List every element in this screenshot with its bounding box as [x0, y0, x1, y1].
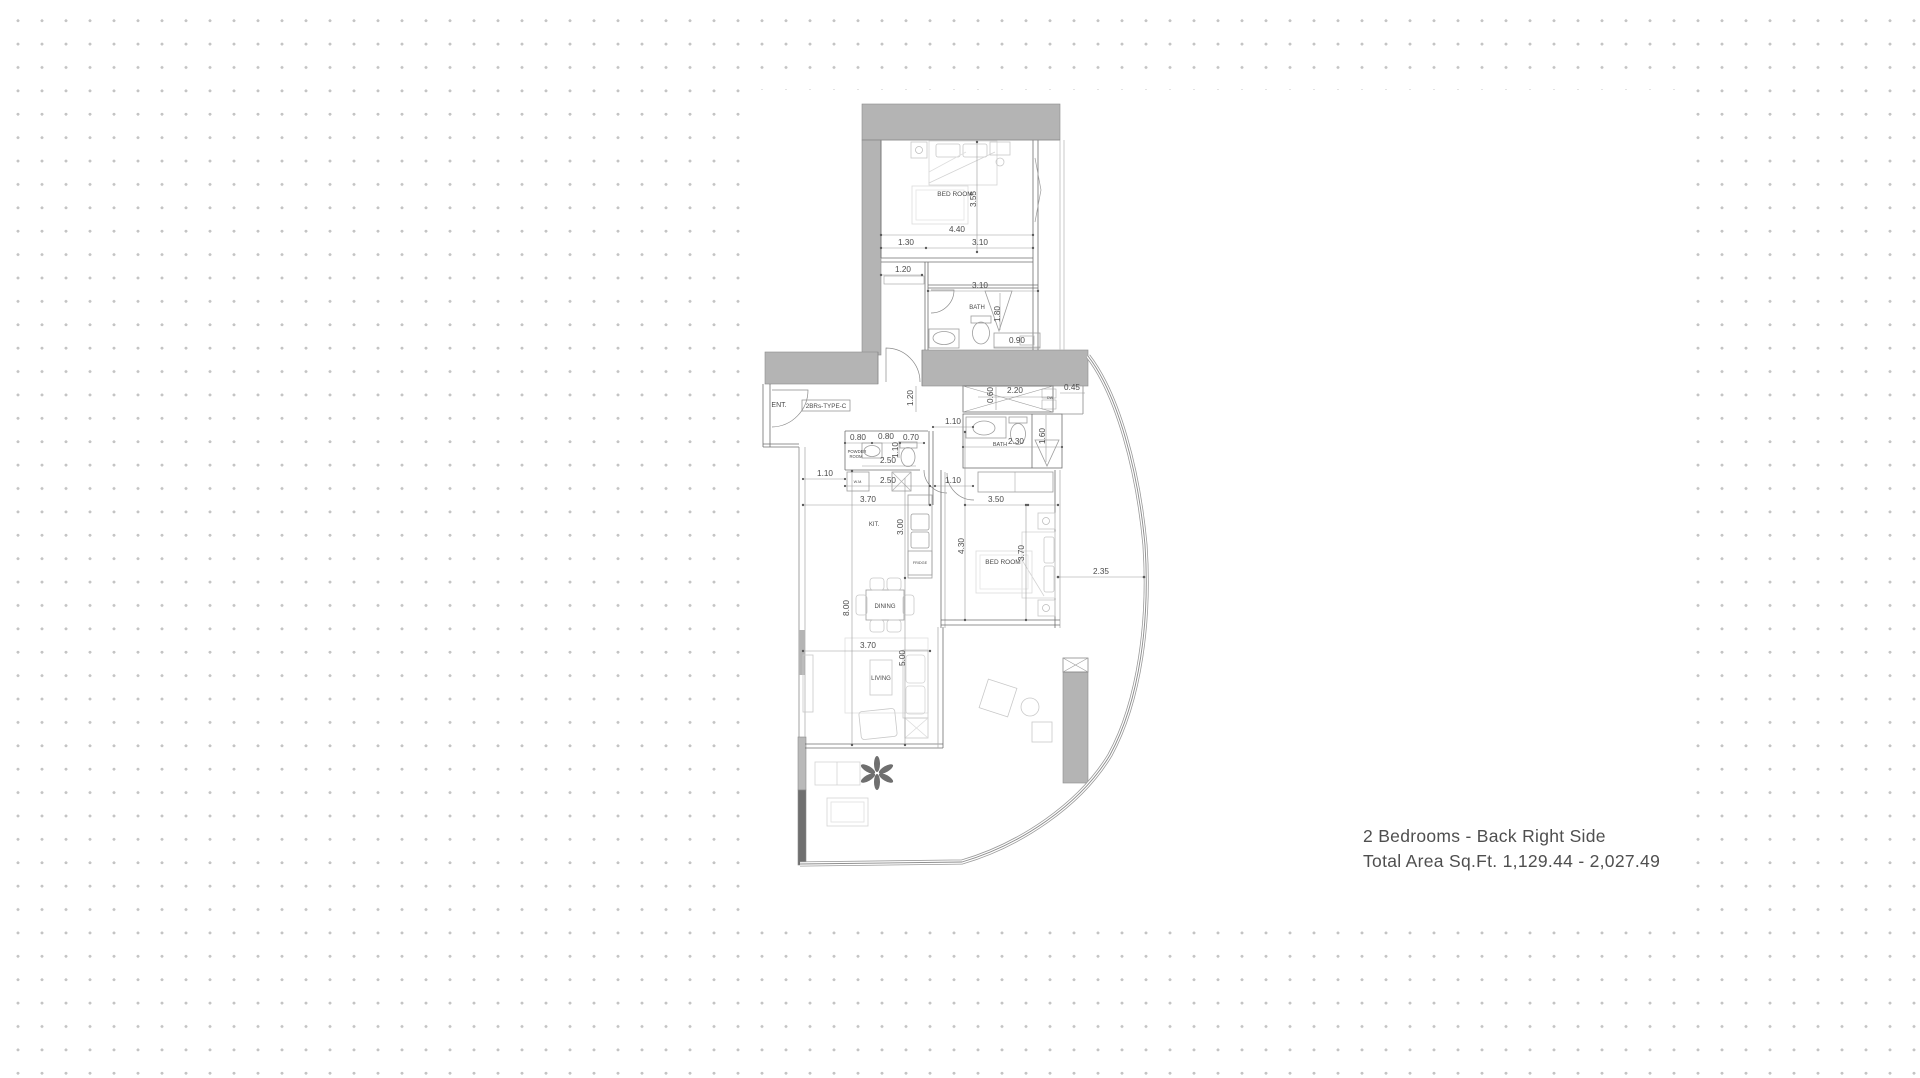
dim-label: 3.55	[969, 191, 978, 207]
dim-label: 1.80	[993, 306, 1002, 322]
caption-title: 2 Bedrooms - Back Right Side	[1363, 824, 1660, 849]
dim-label: 0.80	[878, 432, 894, 441]
dim-label: 3.10	[972, 238, 988, 247]
dim-label: 0.80	[850, 433, 866, 442]
dim-label: 1.20	[906, 390, 915, 406]
dim-label: 2.35	[1093, 567, 1109, 576]
dim-label: 3.70	[1017, 545, 1026, 561]
dim-label: 5.00	[898, 650, 907, 666]
dim-label: 1.10	[945, 417, 961, 426]
dim-label: 1.10	[945, 476, 961, 485]
dim-label: 0.70	[903, 433, 919, 442]
dim-label: 1.20	[895, 265, 911, 274]
dim-label: 1.30	[898, 238, 914, 247]
room-label: DW	[1047, 396, 1054, 400]
furniture	[803, 141, 1059, 826]
dim-label: 0.90	[1009, 336, 1025, 345]
dimension-lines	[803, 142, 1144, 745]
floor-plan-svg: 2BRs-TYPE-C BED ROOMBATHENT.POWDERROOMW.…	[0, 0, 1920, 1078]
dim-label: 2.50	[880, 456, 896, 465]
room-label: BATH	[969, 305, 985, 311]
dim-label: 3.10	[972, 281, 988, 290]
room-label: DINING	[875, 604, 896, 610]
dim-label: 2.50	[880, 476, 896, 485]
dim-label: 4.40	[949, 225, 965, 234]
room-label: BED ROOM	[985, 559, 1020, 566]
plant-icon	[860, 756, 895, 790]
walls	[765, 104, 1088, 865]
room-label: KIT.	[869, 522, 880, 528]
room-label: FRIDGE	[913, 561, 928, 565]
room-label: ROOM	[849, 454, 863, 459]
room-label: W.M.	[854, 480, 863, 484]
caption: 2 Bedrooms - Back Right Side Total Area …	[1363, 824, 1660, 874]
dimension-ticks	[802, 141, 1145, 746]
dim-label: 2.30	[1008, 437, 1024, 446]
room-label: ENT.	[771, 402, 786, 409]
dim-label: 3.50	[988, 495, 1004, 504]
dim-label: 1.60	[1038, 428, 1047, 444]
dim-label: 0.45	[1064, 383, 1080, 392]
room-label: BATH	[993, 442, 1007, 448]
dim-label: 2.20	[1007, 386, 1023, 395]
dim-label: 3.00	[896, 519, 905, 535]
caption-subtitle: Total Area Sq.Ft. 1,129.44 - 2,027.49	[1363, 849, 1660, 874]
room-label: LIVING	[871, 676, 891, 682]
type-label-text: 2BRs-TYPE-C	[806, 403, 847, 410]
room-label: BED ROOM	[937, 191, 972, 198]
dim-label: 8.00	[842, 600, 851, 616]
dim-label: 3.70	[860, 641, 876, 650]
dim-label: 0.60	[986, 387, 995, 403]
dim-label: 3.70	[860, 495, 876, 504]
dim-label: 4.30	[957, 538, 966, 554]
dim-label: 1.10	[817, 469, 833, 478]
type-label: 2BRs-TYPE-C	[802, 400, 850, 411]
